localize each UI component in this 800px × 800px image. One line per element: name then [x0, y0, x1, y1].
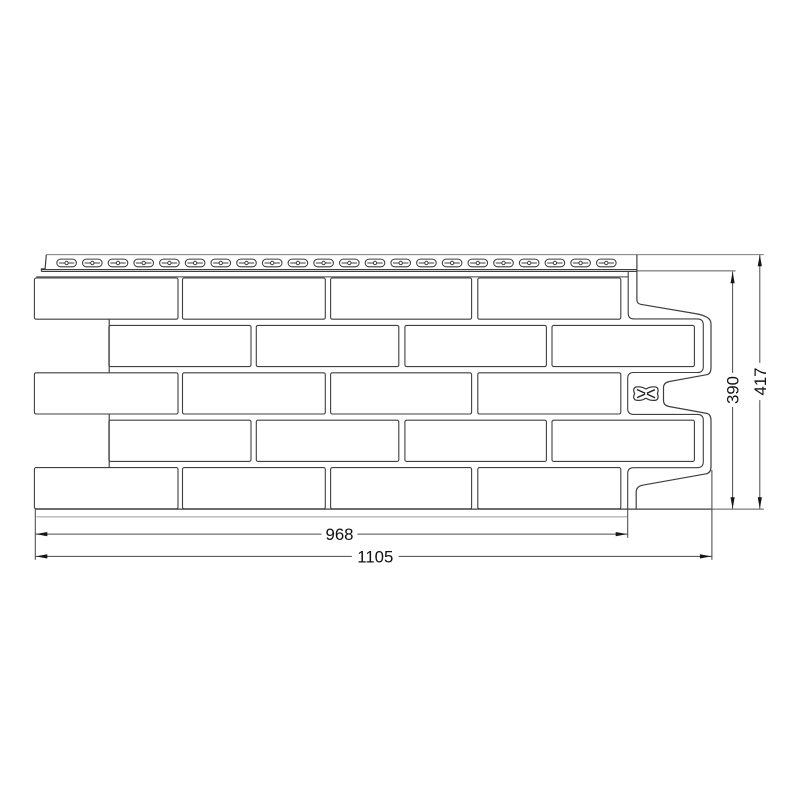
svg-text:390: 390	[724, 376, 743, 404]
svg-text:417: 417	[751, 368, 770, 396]
svg-text:968: 968	[326, 525, 354, 544]
svg-text:1105: 1105	[357, 548, 393, 567]
